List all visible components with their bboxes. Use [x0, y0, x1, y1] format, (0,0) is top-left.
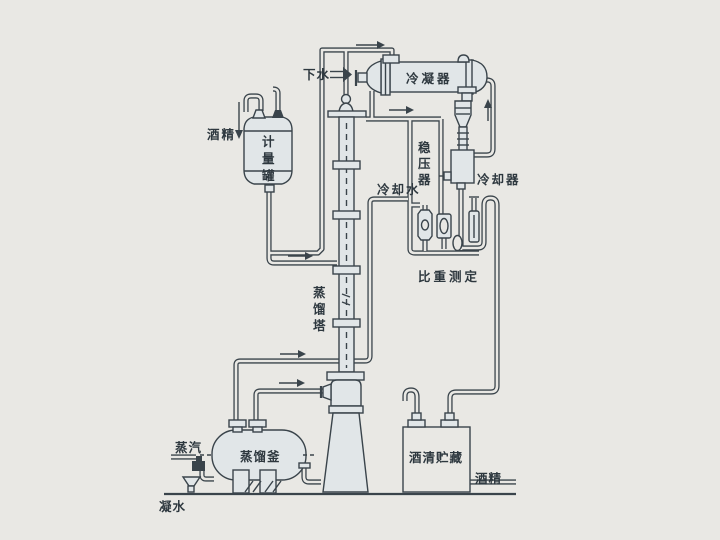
label-condenser: 冷凝器: [406, 71, 453, 86]
storage-tank: 酒清贮藏 酒精: [403, 413, 502, 492]
label-condensate: 凝水: [159, 499, 186, 514]
label-stabilizer: 稳压器: [417, 140, 431, 187]
label-alcohol-out: 酒精: [475, 471, 502, 486]
drain-funnel: [183, 477, 200, 486]
label-storage: 酒清贮藏: [409, 450, 463, 465]
cooler-body: [451, 150, 474, 183]
alcohol-inlet-arrow-icon: [235, 102, 243, 139]
diagram-canvas: 冷凝器 稳压器 冷却器 蒸馏塔: [0, 0, 720, 540]
label-measuring-tank: 计量罐: [261, 134, 275, 183]
drain-water-arrow-icon: [330, 67, 352, 82]
steam-valve: [192, 461, 205, 471]
label-drain-water: 下水: [303, 67, 330, 82]
process-diagram: 冷凝器 稳压器 冷却器 蒸馏塔: [0, 0, 720, 540]
label-column: 蒸馏塔: [312, 285, 326, 333]
float-bulb: [453, 236, 462, 251]
label-steam: 蒸汽: [175, 440, 202, 455]
column-pedestal: [323, 413, 368, 492]
label-alcohol-feed: 酒精: [207, 127, 236, 142]
label-cooling-water: 冷却水: [377, 182, 421, 197]
label-cooler: 冷却器: [477, 172, 521, 187]
stabilizer-and-cooler: 稳压器 冷却器: [417, 87, 521, 189]
condenser-inlet-nozzle: [383, 55, 399, 63]
flow-arrow-right-icon: [389, 106, 414, 114]
flow-arrows: 下水: [235, 41, 492, 387]
label-gravity-measure: 比重测定: [418, 269, 480, 284]
label-kettle: 蒸馏釜: [240, 449, 281, 464]
flow-arrow-right-icon: [280, 350, 306, 358]
tank-valve-nozzle: [272, 110, 284, 118]
kettle-saddle: [260, 470, 276, 493]
flow-arrow-right-icon: [279, 379, 305, 387]
measuring-tank: 计量罐 酒精: [207, 110, 292, 192]
